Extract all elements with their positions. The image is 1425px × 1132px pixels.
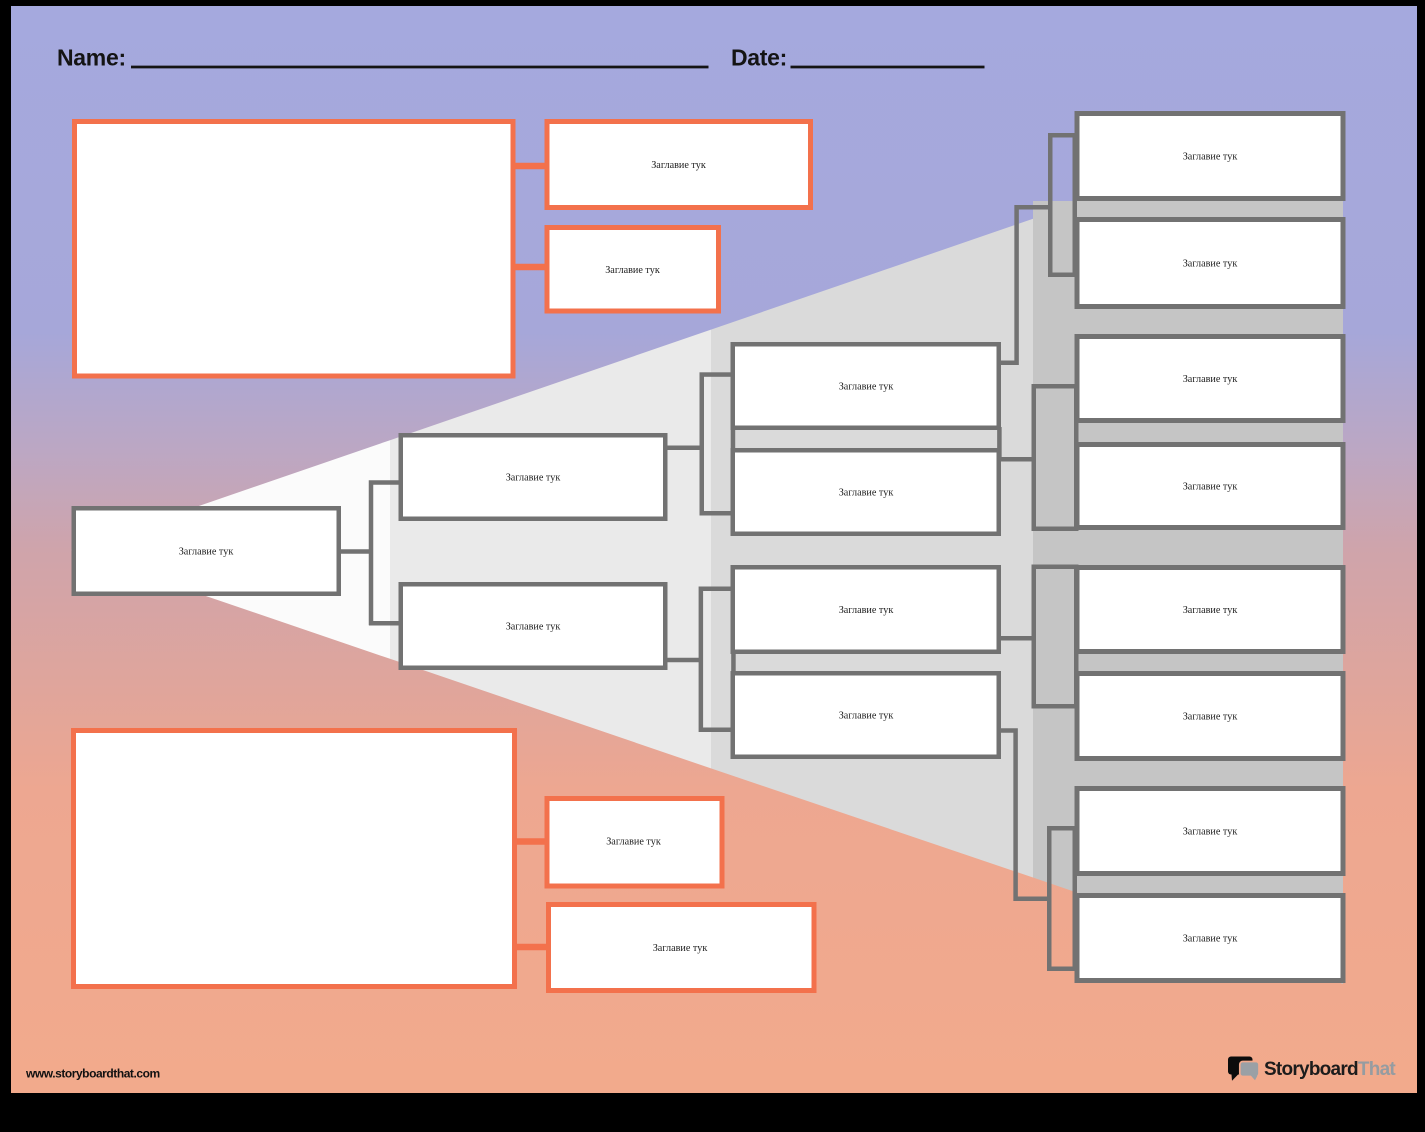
svg-text:Заглавие тук: Заглавие тук [606, 837, 661, 848]
svg-text:Name:: Name: [57, 45, 126, 71]
svg-text:Заглавие тук: Заглавие тук [1183, 934, 1238, 945]
svg-text:Заглавие тук: Заглавие тук [839, 488, 894, 499]
svg-text:Заглавие тук: Заглавие тук [1183, 374, 1238, 385]
svg-text:Заглавие тук: Заглавие тук [653, 943, 708, 954]
svg-text:Заглавие тук: Заглавие тук [506, 473, 561, 484]
svg-text:StoryboardThat: StoryboardThat [1264, 1059, 1396, 1080]
svg-text:Заглавие тук: Заглавие тук [506, 622, 561, 633]
svg-text:Заглавие тук: Заглавие тук [1183, 152, 1238, 163]
svg-text:Заглавие тук: Заглавие тук [179, 547, 234, 558]
svg-text:Date:: Date: [731, 45, 787, 71]
svg-text:www.storyboardthat.com: www.storyboardthat.com [25, 1067, 160, 1081]
svg-text:Заглавие тук: Заглавие тук [839, 605, 894, 616]
svg-text:Заглавие тук: Заглавие тук [1183, 712, 1238, 723]
svg-text:Заглавие тук: Заглавие тук [1183, 259, 1238, 270]
svg-text:Заглавие тук: Заглавие тук [839, 382, 894, 393]
svg-text:Заглавие тук: Заглавие тук [1183, 827, 1238, 838]
svg-text:Заглавие тук: Заглавие тук [605, 265, 660, 276]
svg-text:Заглавие тук: Заглавие тук [839, 711, 894, 722]
svg-text:Заглавие тук: Заглавие тук [1183, 482, 1238, 493]
svg-text:Заглавие тук: Заглавие тук [651, 160, 706, 171]
svg-text:Заглавие тук: Заглавие тук [1183, 605, 1238, 616]
